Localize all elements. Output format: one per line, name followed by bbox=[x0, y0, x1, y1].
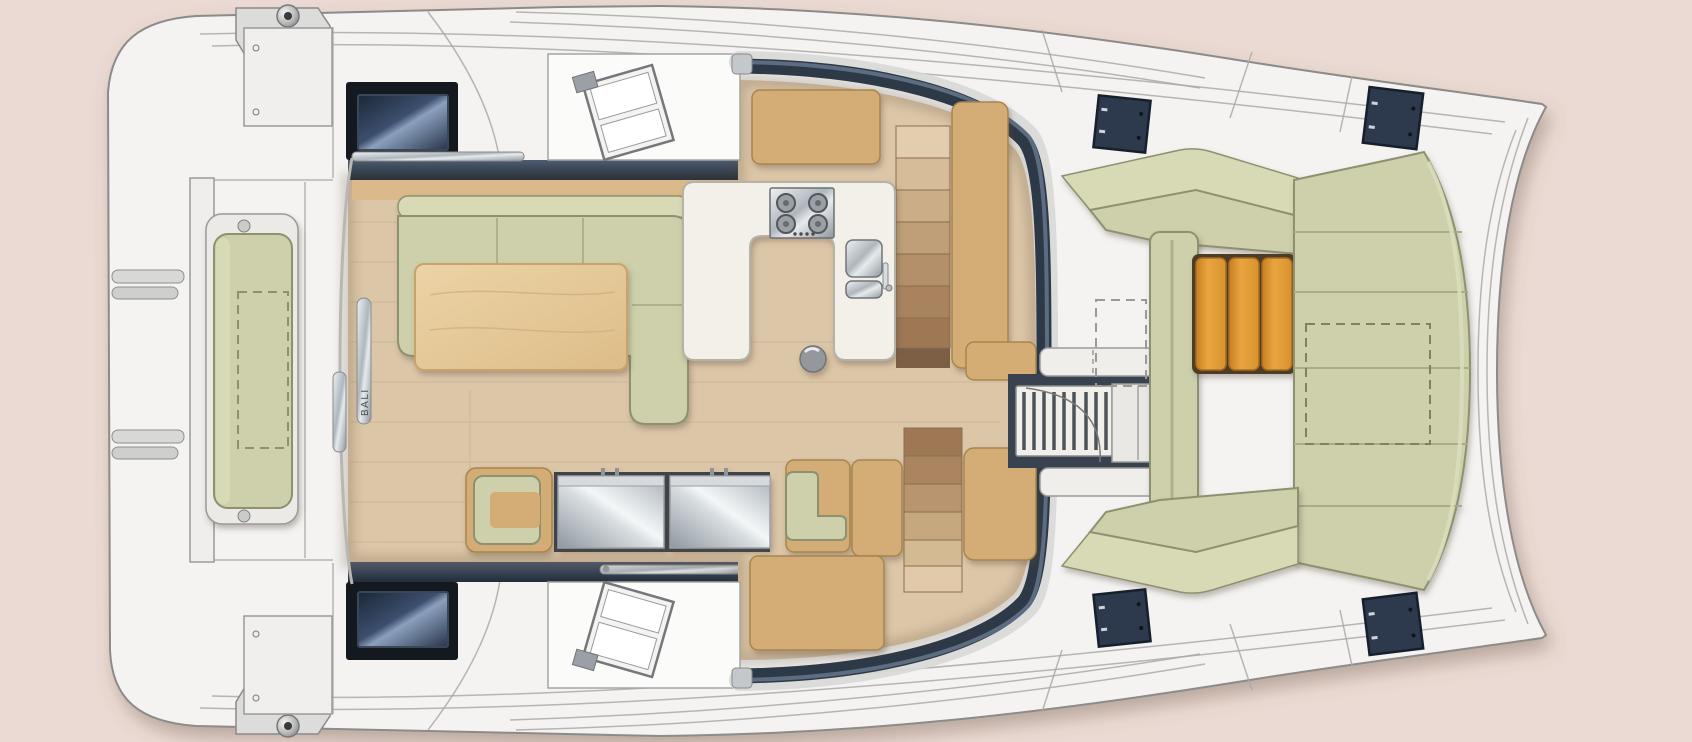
cabinet-port-run bbox=[750, 556, 884, 650]
panel bbox=[244, 28, 332, 126]
companionway-stairs-starboard bbox=[896, 126, 950, 368]
aft-window-top bbox=[346, 82, 458, 160]
teak-plank bbox=[1196, 258, 1226, 370]
fridge-latch bbox=[710, 468, 714, 476]
door-threshold-bottom bbox=[1040, 468, 1168, 496]
hatch-hinge-slot bbox=[1101, 108, 1107, 112]
stair-tread bbox=[896, 126, 950, 158]
sliding-door-handle-2 bbox=[333, 372, 346, 452]
cabinet-starboard-tall bbox=[952, 102, 1008, 368]
ladder-rung bbox=[112, 270, 184, 283]
stair-tread bbox=[896, 222, 950, 254]
stair-tread bbox=[896, 318, 950, 348]
cabinet-port-mid bbox=[852, 460, 902, 556]
sink-basin bbox=[846, 240, 882, 277]
companionway-stairs-port bbox=[904, 428, 962, 592]
roof-hatch-area-bottom bbox=[548, 580, 740, 688]
cockpit-table bbox=[1192, 254, 1296, 374]
deck-panel-bottom bbox=[244, 616, 332, 714]
stern-bench-bolster bbox=[216, 238, 230, 504]
burner-center bbox=[783, 200, 789, 206]
stove-knob bbox=[793, 232, 796, 235]
fridge-latch bbox=[724, 468, 728, 476]
fridge-top-2 bbox=[670, 468, 770, 548]
ladder-rung bbox=[112, 447, 178, 459]
chart-seat bbox=[786, 460, 850, 552]
hatch-hinge-slot bbox=[1101, 628, 1107, 632]
fridge-latch bbox=[601, 468, 605, 476]
teak-plank bbox=[1262, 258, 1292, 370]
stair-tread bbox=[904, 540, 962, 566]
davit-ball-bottom-center bbox=[284, 722, 292, 730]
burner-center bbox=[815, 221, 821, 227]
roof-hatch-area-top bbox=[548, 54, 740, 162]
chair-cushion-cut bbox=[490, 492, 540, 528]
davit-ball-top-center bbox=[284, 12, 292, 20]
aft-window-bottom bbox=[346, 582, 458, 660]
hatch-hinge-slot bbox=[1099, 130, 1105, 134]
deck-hatch-top-inner bbox=[1093, 95, 1150, 152]
ladder-rung bbox=[112, 287, 178, 299]
window-pane bbox=[358, 95, 448, 150]
stove-knob bbox=[799, 232, 802, 235]
panel bbox=[244, 616, 332, 714]
band-end-cap-top bbox=[732, 54, 752, 74]
door-track-rail-top bbox=[352, 152, 524, 161]
sliding-door-handle-bali: BALI bbox=[357, 298, 371, 424]
fridge-latch bbox=[615, 468, 619, 476]
stair-tread bbox=[904, 484, 962, 512]
stove-knob bbox=[811, 232, 814, 235]
stair-tread bbox=[904, 456, 962, 484]
stair-tread bbox=[896, 286, 950, 318]
deck-hatch-bottom-inner bbox=[1093, 589, 1150, 646]
stair-tread bbox=[896, 190, 950, 222]
nav-chair bbox=[466, 468, 552, 552]
stove bbox=[770, 188, 834, 238]
catamaran-floorplan: BALI bbox=[0, 0, 1692, 742]
ladder-rung bbox=[112, 430, 184, 443]
deck-hatch-top-bow bbox=[1363, 87, 1423, 149]
stair-tread bbox=[904, 428, 962, 456]
window-pane bbox=[358, 592, 448, 647]
faucet-handle bbox=[886, 285, 892, 291]
bench-bolt-top bbox=[238, 220, 250, 232]
dining-table bbox=[415, 264, 627, 370]
door-step bbox=[1112, 384, 1152, 462]
stair-tread bbox=[896, 254, 950, 286]
door-threshold-top bbox=[1040, 348, 1168, 376]
fridge-top-1 bbox=[558, 468, 664, 548]
sofa-backrest bbox=[398, 196, 688, 218]
cockpit-sunbed bbox=[1294, 152, 1470, 590]
burner-center bbox=[783, 221, 789, 227]
sink-basin bbox=[846, 281, 882, 298]
dining-table-top bbox=[415, 264, 627, 370]
stair-tread bbox=[904, 512, 962, 540]
stair-tread bbox=[904, 566, 962, 592]
stern-bench bbox=[206, 214, 298, 524]
sunbed-cushions bbox=[1294, 152, 1470, 590]
band-end-cap-bottom bbox=[732, 668, 752, 688]
galley-stool bbox=[800, 346, 826, 372]
stove-knob bbox=[805, 232, 808, 235]
brand-label: BALI bbox=[360, 388, 371, 416]
bench-bolt-bottom bbox=[238, 510, 250, 522]
galley-upper-cabinet bbox=[752, 90, 880, 164]
teak-plank bbox=[1229, 258, 1259, 370]
stair-tread bbox=[896, 158, 950, 190]
deck-hatch-bottom-bow bbox=[1363, 593, 1423, 655]
burner-center bbox=[815, 200, 821, 206]
hatch-hinge-slot bbox=[1099, 606, 1105, 610]
deck-panel-top bbox=[244, 28, 332, 126]
